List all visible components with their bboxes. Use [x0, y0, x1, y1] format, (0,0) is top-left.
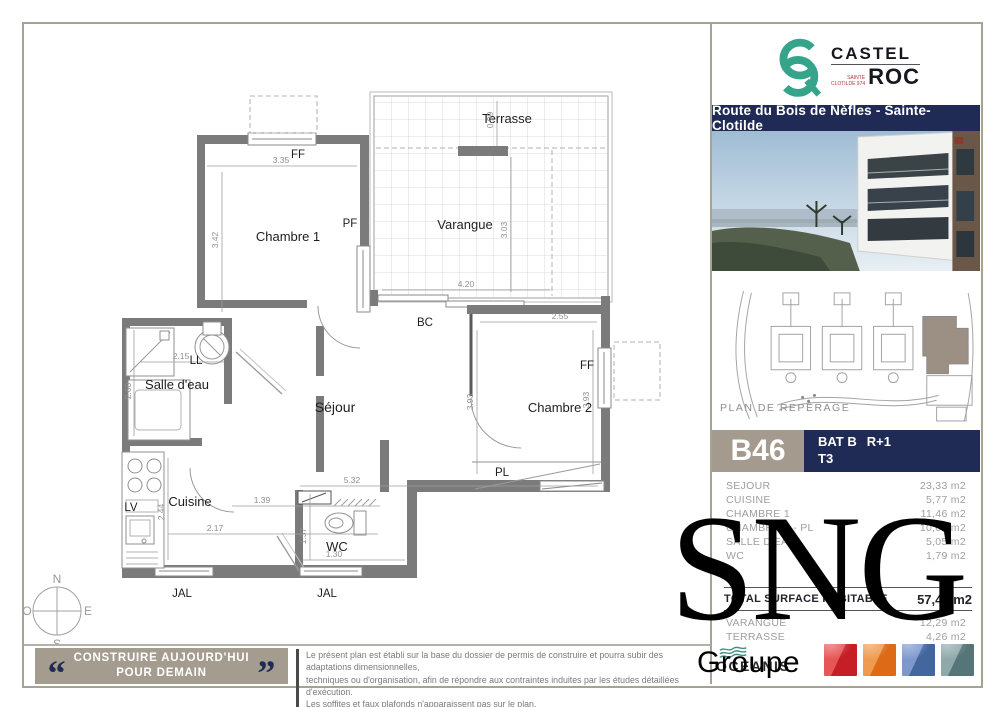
- dim-099: 0.99: [485, 111, 495, 128]
- dim-130: 1.30: [326, 549, 343, 559]
- highlighted-unit: [923, 317, 968, 374]
- unit-header: B46 BAT BR+1 T3: [712, 430, 980, 472]
- slogan-bar: “ CONSTRUIRE AUJOURD'HUI POUR DEMAIN ”: [35, 648, 288, 684]
- site-plan-caption: PLAN DE REPÉRAGE: [720, 402, 850, 414]
- dim-137: 1.37: [298, 527, 308, 544]
- tag-ff-2: FF: [580, 360, 594, 372]
- label-sejour: Séjour: [315, 399, 356, 415]
- table-row: CHAMBRE 2 - PL10,01 m2: [726, 521, 966, 535]
- tag-bc: BC: [417, 317, 433, 329]
- dim-335: 3.35: [273, 155, 290, 165]
- label-varangue: Varangue: [437, 217, 492, 232]
- tag-lv: LV: [124, 502, 138, 514]
- unit-floor: R+1: [867, 434, 891, 449]
- page: Terrasse Varangue Chambre 1 Chambre 2 Sé…: [0, 0, 1000, 707]
- tag-pf: PF: [343, 218, 358, 230]
- dim-244: 2.44: [156, 503, 166, 520]
- quote-close-icon: ”: [257, 666, 275, 680]
- location-banner: Route du Bois de Nèfles - Sainte-Clotild…: [712, 105, 980, 131]
- tag-pl: PL: [495, 467, 510, 479]
- footer-divider: [24, 644, 710, 646]
- tag-jal-2: JAL: [317, 588, 337, 600]
- dim-393-left: 3.93: [465, 393, 475, 410]
- dim-420: 4.20: [458, 279, 475, 289]
- surface-table: SEJOUR23,33 m2 CUISINE5,77 m2 CHAMBRE 11…: [726, 479, 966, 563]
- dim-215: 2.15: [173, 351, 190, 361]
- dim-139: 1.39: [254, 495, 271, 505]
- label-chambre1: Chambre 1: [256, 229, 320, 244]
- oceanis-logo: OCEANIS: [716, 646, 824, 674]
- svg-text:E: E: [84, 604, 92, 618]
- dim-532: 5.32: [344, 475, 361, 485]
- color-swatches: [824, 644, 974, 676]
- svg-text:N: N: [53, 572, 62, 586]
- partner-block: OCEANIS: [716, 642, 980, 684]
- unit-info: BAT BR+1 T3: [804, 430, 980, 472]
- table-row: CUISINE5,77 m2: [726, 493, 966, 507]
- tag-ll: LL: [190, 355, 203, 367]
- castelroc-logo: CASTEL SAINTE CLOTILDE 974 ROC: [712, 28, 980, 104]
- table-row: CHAMBRE 111,46 m2: [726, 507, 966, 521]
- building-photo: [712, 131, 980, 271]
- color-swatch-blue: [902, 644, 935, 676]
- dim-217: 2.17: [207, 523, 224, 533]
- color-swatch-orange: [863, 644, 896, 676]
- extra-surfaces: VARANGUE12,29 m2 TERRASSE4,26 m2: [726, 616, 966, 644]
- unit-type: T3: [818, 451, 980, 468]
- floor-plan: Terrasse Varangue Chambre 1 Chambre 2 Sé…: [22, 22, 710, 644]
- table-row: SEJOUR23,33 m2: [726, 479, 966, 493]
- color-swatch-slate: [941, 644, 974, 676]
- unit-building: BAT B: [818, 434, 857, 449]
- unit-code: B46: [712, 430, 804, 472]
- brand-name-line1: CASTEL: [831, 45, 920, 65]
- tag-jal-1: JAL: [172, 588, 192, 600]
- tag-ff-1: FF: [291, 149, 305, 161]
- color-swatch-red: [824, 644, 857, 676]
- total-surface-row: TOTAL SURFACE HABITABLE 57,41 m2: [724, 587, 972, 611]
- table-row: SALLE D'EAU5,05 m2: [726, 535, 966, 549]
- dim-303: 3.03: [499, 221, 509, 238]
- slogan-text: CONSTRUIRE AUJOURD'HUI POUR DEMAIN: [74, 651, 250, 681]
- dim-342: 3.42: [210, 231, 220, 248]
- table-row: VARANGUE12,29 m2: [726, 616, 966, 630]
- total-label: TOTAL SURFACE HABITABLE: [724, 593, 888, 605]
- table-row: WC1,79 m2: [726, 549, 966, 563]
- total-value: 57,41 m2: [917, 592, 972, 607]
- right-panel: CASTEL SAINTE CLOTILDE 974 ROC Route du …: [712, 24, 980, 684]
- brand-name-line2: ROC: [868, 66, 920, 88]
- quote-open-icon: “: [48, 666, 66, 680]
- dim-255: 2.55: [552, 311, 569, 321]
- label-salle-deau: Salle d'eau: [145, 377, 209, 392]
- castelroc-monogram-icon: [772, 35, 824, 97]
- partner-name: OCEANIS: [716, 658, 790, 674]
- dim-260: 2.60: [123, 382, 133, 399]
- compass-icon: N O E S: [22, 572, 92, 644]
- dim-393-right: 3.93: [581, 391, 591, 408]
- label-cuisine: Cuisine: [168, 494, 211, 509]
- svg-text:S: S: [53, 637, 61, 644]
- svg-text:O: O: [22, 604, 31, 618]
- disclaimer: Le présent plan est établi sur la base d…: [296, 649, 708, 707]
- brand-sub: SAINTE CLOTILDE 974: [831, 76, 865, 88]
- location-banner-text: Route du Bois de Nèfles - Sainte-Clotild…: [712, 103, 980, 133]
